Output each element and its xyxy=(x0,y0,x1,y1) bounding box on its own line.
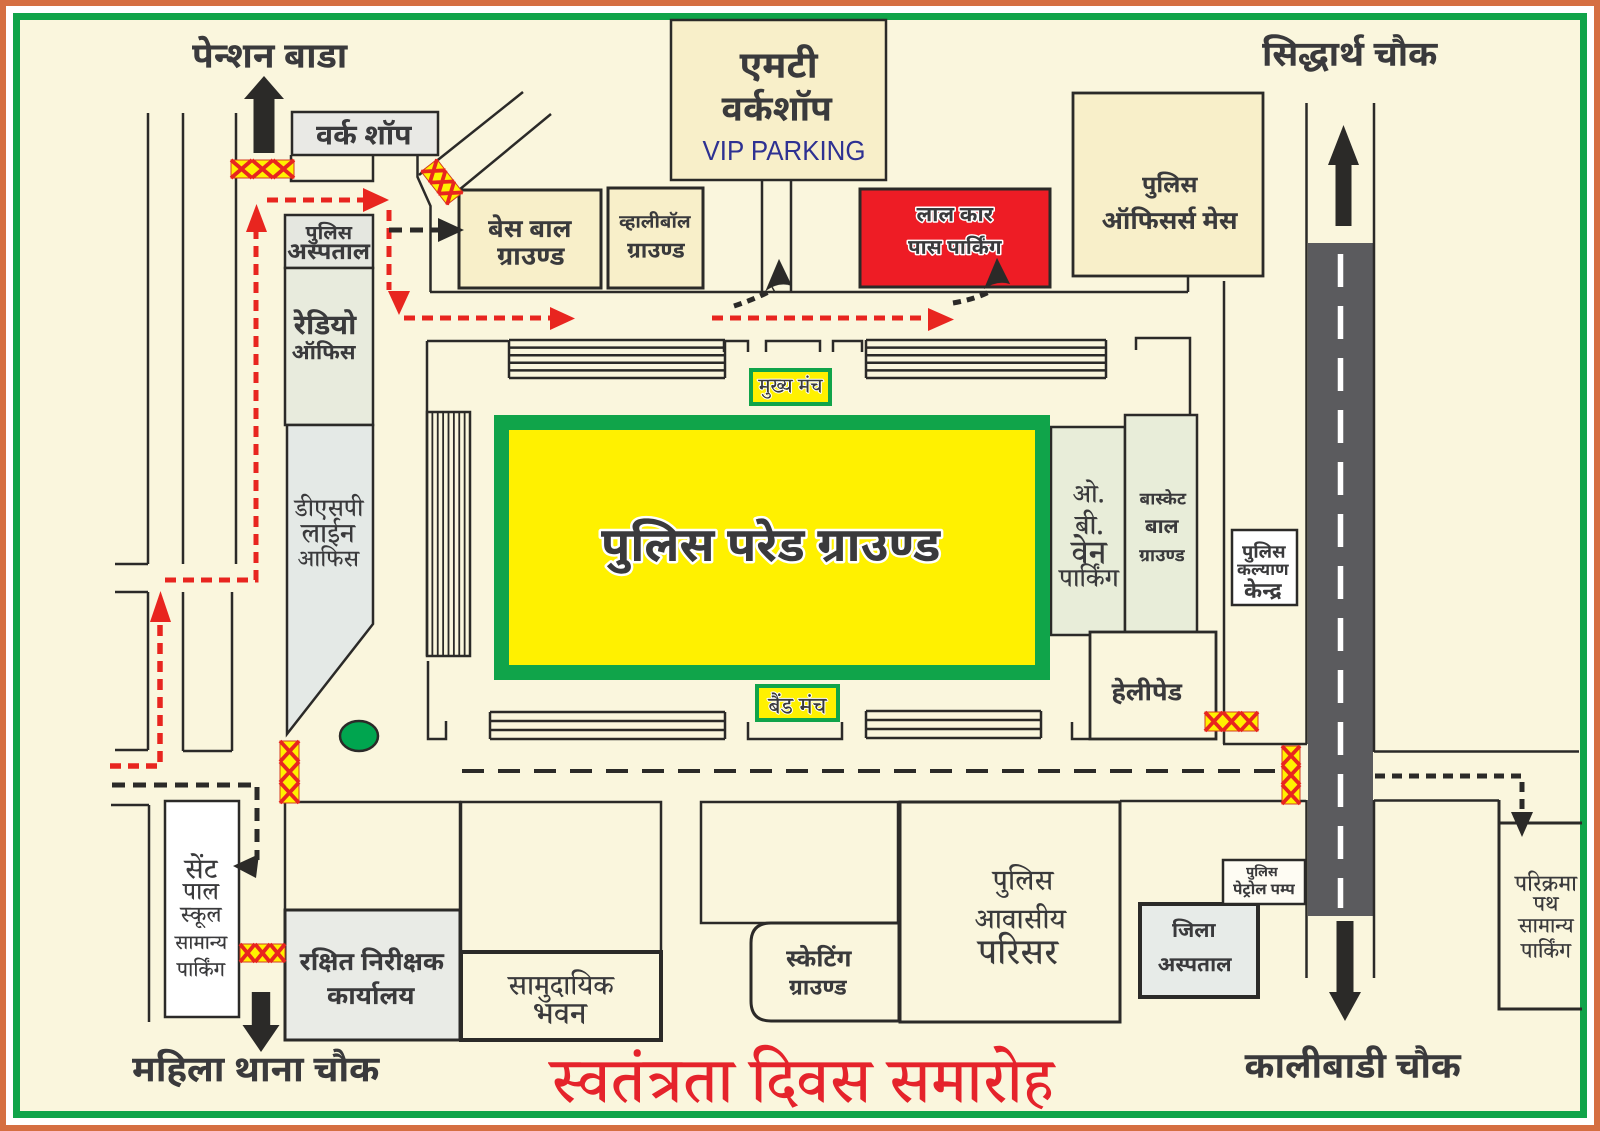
svg-text:VIP PARKING: VIP PARKING xyxy=(703,135,866,166)
